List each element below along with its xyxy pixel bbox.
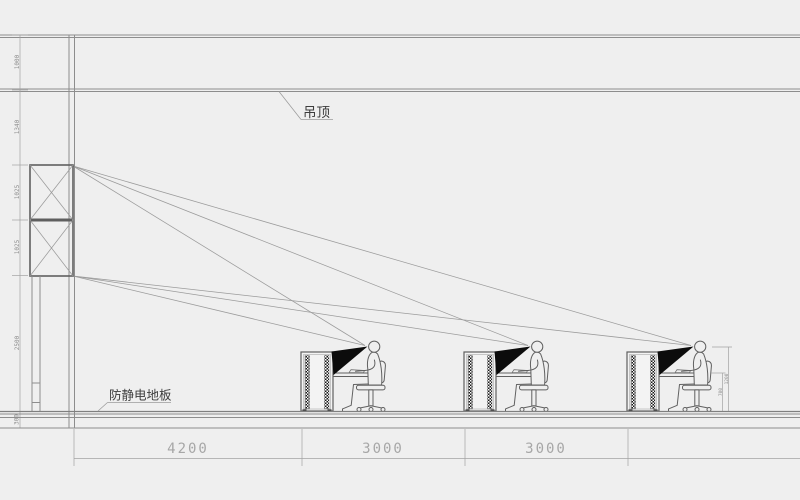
section-drawing: 吊顶 1000 1340 1025 1025 2500 300 xyxy=(0,0,800,500)
dim-eye-height: 1200 xyxy=(724,373,730,384)
dim-span-row1-row2: 3000 xyxy=(362,441,404,457)
dim-desk-height: 700 xyxy=(718,388,724,396)
dim-ceiling-void: 1000 xyxy=(14,54,21,69)
ceiling-label: 吊顶 xyxy=(303,105,330,121)
dim-raised-floor: 300 xyxy=(14,414,21,425)
dim-ceiling-to-screen: 1340 xyxy=(14,119,21,134)
floor-label: 防静电地板 xyxy=(109,388,172,403)
dim-span-wall-to-row1: 4200 xyxy=(167,441,209,457)
dim-screen-panel-upper: 1025 xyxy=(14,184,21,199)
dim-span-row2-row3: 3000 xyxy=(525,441,567,457)
dim-screen-to-floor: 2500 xyxy=(14,335,21,350)
dim-screen-panel-lower: 1025 xyxy=(14,239,21,254)
drawing-background xyxy=(0,0,800,500)
